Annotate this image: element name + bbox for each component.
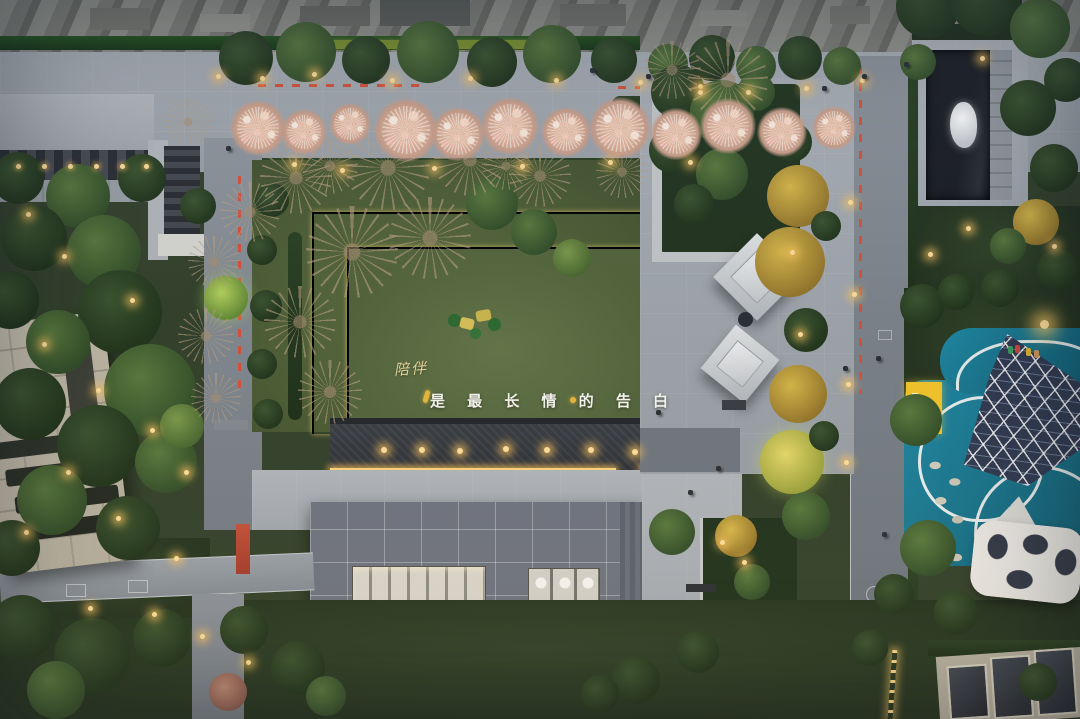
tree-canopy — [649, 509, 695, 555]
lawn-caption-main: 是 最 长 情 的 告 白 — [430, 390, 677, 411]
tree-canopy — [209, 673, 247, 711]
person-figure — [862, 74, 867, 79]
pergola-light — [68, 164, 73, 169]
water-light — [632, 449, 638, 455]
tree-canopy — [782, 492, 830, 540]
blossom-tree — [650, 108, 702, 160]
bare-tree — [298, 360, 362, 424]
tree-canopy — [852, 630, 888, 666]
path-light — [638, 80, 643, 85]
person-figure — [904, 62, 909, 67]
tree-canopy — [784, 308, 828, 352]
person-figure — [843, 366, 848, 371]
person-figure — [646, 74, 651, 79]
pergola-light — [16, 164, 21, 169]
person-figure — [590, 68, 595, 73]
water-light — [544, 447, 550, 453]
path-light — [520, 164, 525, 169]
water-light — [381, 447, 387, 453]
aerial-courtyard-photo: 陪伴 是 最 长 情 的 告 白 — [0, 0, 1080, 719]
blossom-tree — [541, 107, 591, 157]
tree-canopy — [397, 21, 459, 83]
path-light — [608, 160, 613, 165]
tree-canopy — [220, 606, 268, 654]
person-figure — [876, 356, 881, 361]
path-light — [62, 254, 67, 259]
bare-tree — [188, 236, 240, 288]
path-light — [720, 540, 725, 545]
path-light — [554, 78, 559, 83]
tree-canopy — [0, 152, 44, 204]
path-light — [966, 226, 971, 231]
path-light — [96, 388, 101, 393]
tree-canopy — [133, 609, 191, 667]
blossom-tree — [589, 97, 651, 159]
tree-canopy — [0, 368, 66, 440]
tree-canopy — [118, 154, 166, 202]
path-light — [130, 298, 135, 303]
pergola-light — [94, 164, 99, 169]
blossom-tree — [281, 109, 327, 155]
caption-dot-accent — [570, 397, 576, 403]
path-light — [844, 460, 849, 465]
tree-canopy — [1030, 144, 1078, 192]
tree-canopy — [990, 228, 1026, 264]
tree-canopy — [26, 310, 90, 374]
tree-canopy — [1037, 249, 1079, 291]
path-light — [246, 660, 251, 665]
tree-canopy — [809, 421, 839, 451]
bare-tree — [164, 98, 212, 146]
path-light — [88, 606, 93, 611]
path-light — [852, 292, 857, 297]
tree-canopy — [180, 188, 216, 224]
blossom-tree — [431, 107, 485, 161]
water-light — [588, 447, 594, 453]
bare-tree — [643, 41, 701, 99]
tree-canopy — [581, 675, 619, 713]
tree-canopy — [276, 22, 336, 82]
tree-canopy — [938, 274, 974, 310]
path-light — [260, 76, 265, 81]
bare-tree — [220, 182, 280, 242]
path-light — [390, 78, 395, 83]
pergola-light — [120, 164, 125, 169]
path-light — [292, 162, 297, 167]
path-light — [698, 84, 703, 89]
path-light — [846, 382, 851, 387]
blossom-tree — [757, 107, 807, 157]
tree-canopy — [900, 520, 956, 576]
bare-tree — [306, 206, 398, 298]
tree-canopy — [612, 656, 660, 704]
path-light — [746, 90, 751, 95]
tree-canopy — [253, 399, 283, 429]
bare-tree — [389, 197, 471, 279]
path-light — [688, 160, 693, 165]
pergola-light — [144, 164, 149, 169]
vegetation-and-lights-layer — [0, 0, 1080, 719]
path-light — [152, 612, 157, 617]
tree-canopy — [342, 36, 390, 84]
person-figure — [882, 532, 887, 537]
tree-canopy — [591, 37, 637, 83]
tree-canopy — [306, 676, 346, 716]
tree-canopy — [0, 595, 55, 661]
tree-canopy — [523, 25, 581, 83]
path-light — [928, 252, 933, 257]
tree-canopy — [1019, 663, 1057, 701]
path-light — [340, 168, 345, 173]
tree-canopy — [467, 37, 517, 87]
water-light — [503, 446, 509, 452]
path-light — [174, 556, 179, 561]
path-light — [26, 212, 31, 217]
path-light — [42, 342, 47, 347]
person-figure — [822, 86, 827, 91]
path-light — [804, 86, 809, 91]
path-light — [66, 470, 71, 475]
path-light — [742, 560, 747, 565]
tree-canopy — [934, 590, 978, 634]
path-light — [1052, 244, 1057, 249]
tree-canopy — [96, 496, 160, 560]
tree-canopy — [219, 31, 273, 85]
path-light — [468, 76, 473, 81]
blossom-tree — [481, 97, 539, 155]
tree-canopy — [811, 211, 841, 241]
person-figure — [716, 466, 721, 471]
tree-canopy — [778, 36, 822, 80]
tree-canopy — [823, 47, 861, 85]
water-light — [457, 448, 463, 454]
bare-tree — [191, 373, 241, 423]
tree-canopy — [1000, 80, 1056, 136]
lawn-caption-script: 陪伴 — [393, 357, 428, 380]
path-light — [980, 56, 985, 61]
path-light — [798, 332, 803, 337]
blossom-tree — [230, 100, 286, 156]
blossom-tree — [700, 98, 756, 154]
tree-canopy — [27, 661, 85, 719]
tree-canopy — [755, 227, 825, 297]
tree-canopy — [511, 209, 557, 255]
blossom-tree — [812, 106, 856, 150]
path-light — [698, 90, 703, 95]
bare-tree — [178, 308, 234, 364]
tree-canopy — [78, 270, 162, 354]
pergola-light — [42, 164, 47, 169]
path-light — [216, 74, 221, 79]
path-light — [200, 634, 205, 639]
person-figure — [226, 146, 231, 151]
blossom-tree — [374, 98, 438, 162]
tree-canopy — [890, 394, 942, 446]
path-light — [184, 470, 189, 475]
tree-canopy — [247, 349, 277, 379]
tree-canopy — [674, 184, 714, 224]
tree-canopy — [981, 269, 1019, 307]
bare-tree — [264, 286, 336, 358]
tree-canopy — [553, 239, 591, 277]
tree-canopy — [1, 205, 67, 271]
path-light — [150, 428, 155, 433]
tree-canopy — [1010, 0, 1070, 58]
water-light — [419, 447, 425, 453]
path-light — [790, 250, 795, 255]
path-light — [24, 530, 29, 535]
tree-canopy — [677, 631, 719, 673]
playground-bench-light — [1040, 320, 1049, 329]
tree-canopy — [715, 515, 757, 557]
person-figure — [688, 490, 693, 495]
tree-canopy — [769, 365, 827, 423]
path-light — [432, 166, 437, 171]
path-light — [116, 516, 121, 521]
path-light — [848, 200, 853, 205]
blossom-tree — [329, 103, 371, 145]
tree-canopy — [874, 574, 914, 614]
tree-canopy — [734, 564, 770, 600]
path-light — [312, 72, 317, 77]
